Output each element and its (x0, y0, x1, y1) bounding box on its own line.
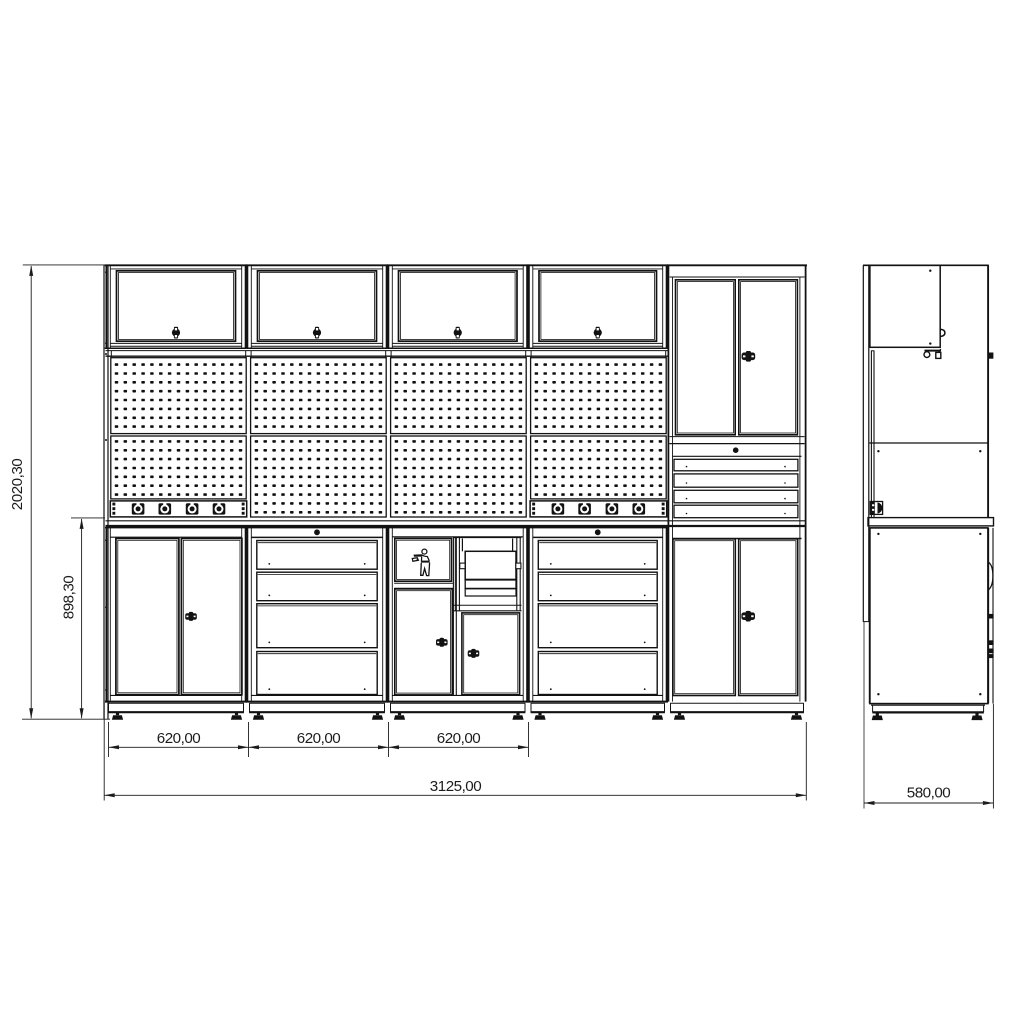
svg-text:3125,00: 3125,00 (430, 778, 481, 795)
svg-text:580,00: 580,00 (907, 785, 951, 802)
svg-text:620,00: 620,00 (157, 730, 201, 747)
svg-text:2020,30: 2020,30 (9, 459, 26, 510)
svg-text:620,00: 620,00 (437, 730, 481, 747)
svg-text:898,30: 898,30 (60, 576, 77, 620)
svg-text:620,00: 620,00 (297, 730, 341, 747)
